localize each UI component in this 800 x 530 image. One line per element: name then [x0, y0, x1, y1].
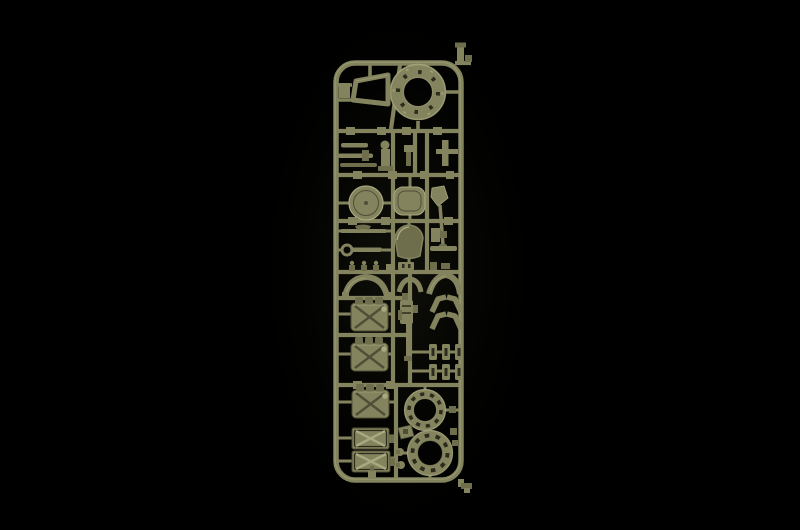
- photo-stage: [0, 0, 800, 530]
- sprue-photo: [0, 0, 800, 530]
- small-clips: [349, 261, 379, 271]
- jerry-can-panel-1: [352, 428, 394, 449]
- round-hatch: [349, 186, 383, 220]
- sprue-photo-canvas: [0, 0, 800, 530]
- dome-cover: [395, 225, 423, 259]
- oval-hatch: [394, 187, 425, 215]
- jerry-can-2: [351, 337, 388, 371]
- jerry-can-3: [352, 384, 389, 418]
- jerry-can-1: [351, 297, 388, 331]
